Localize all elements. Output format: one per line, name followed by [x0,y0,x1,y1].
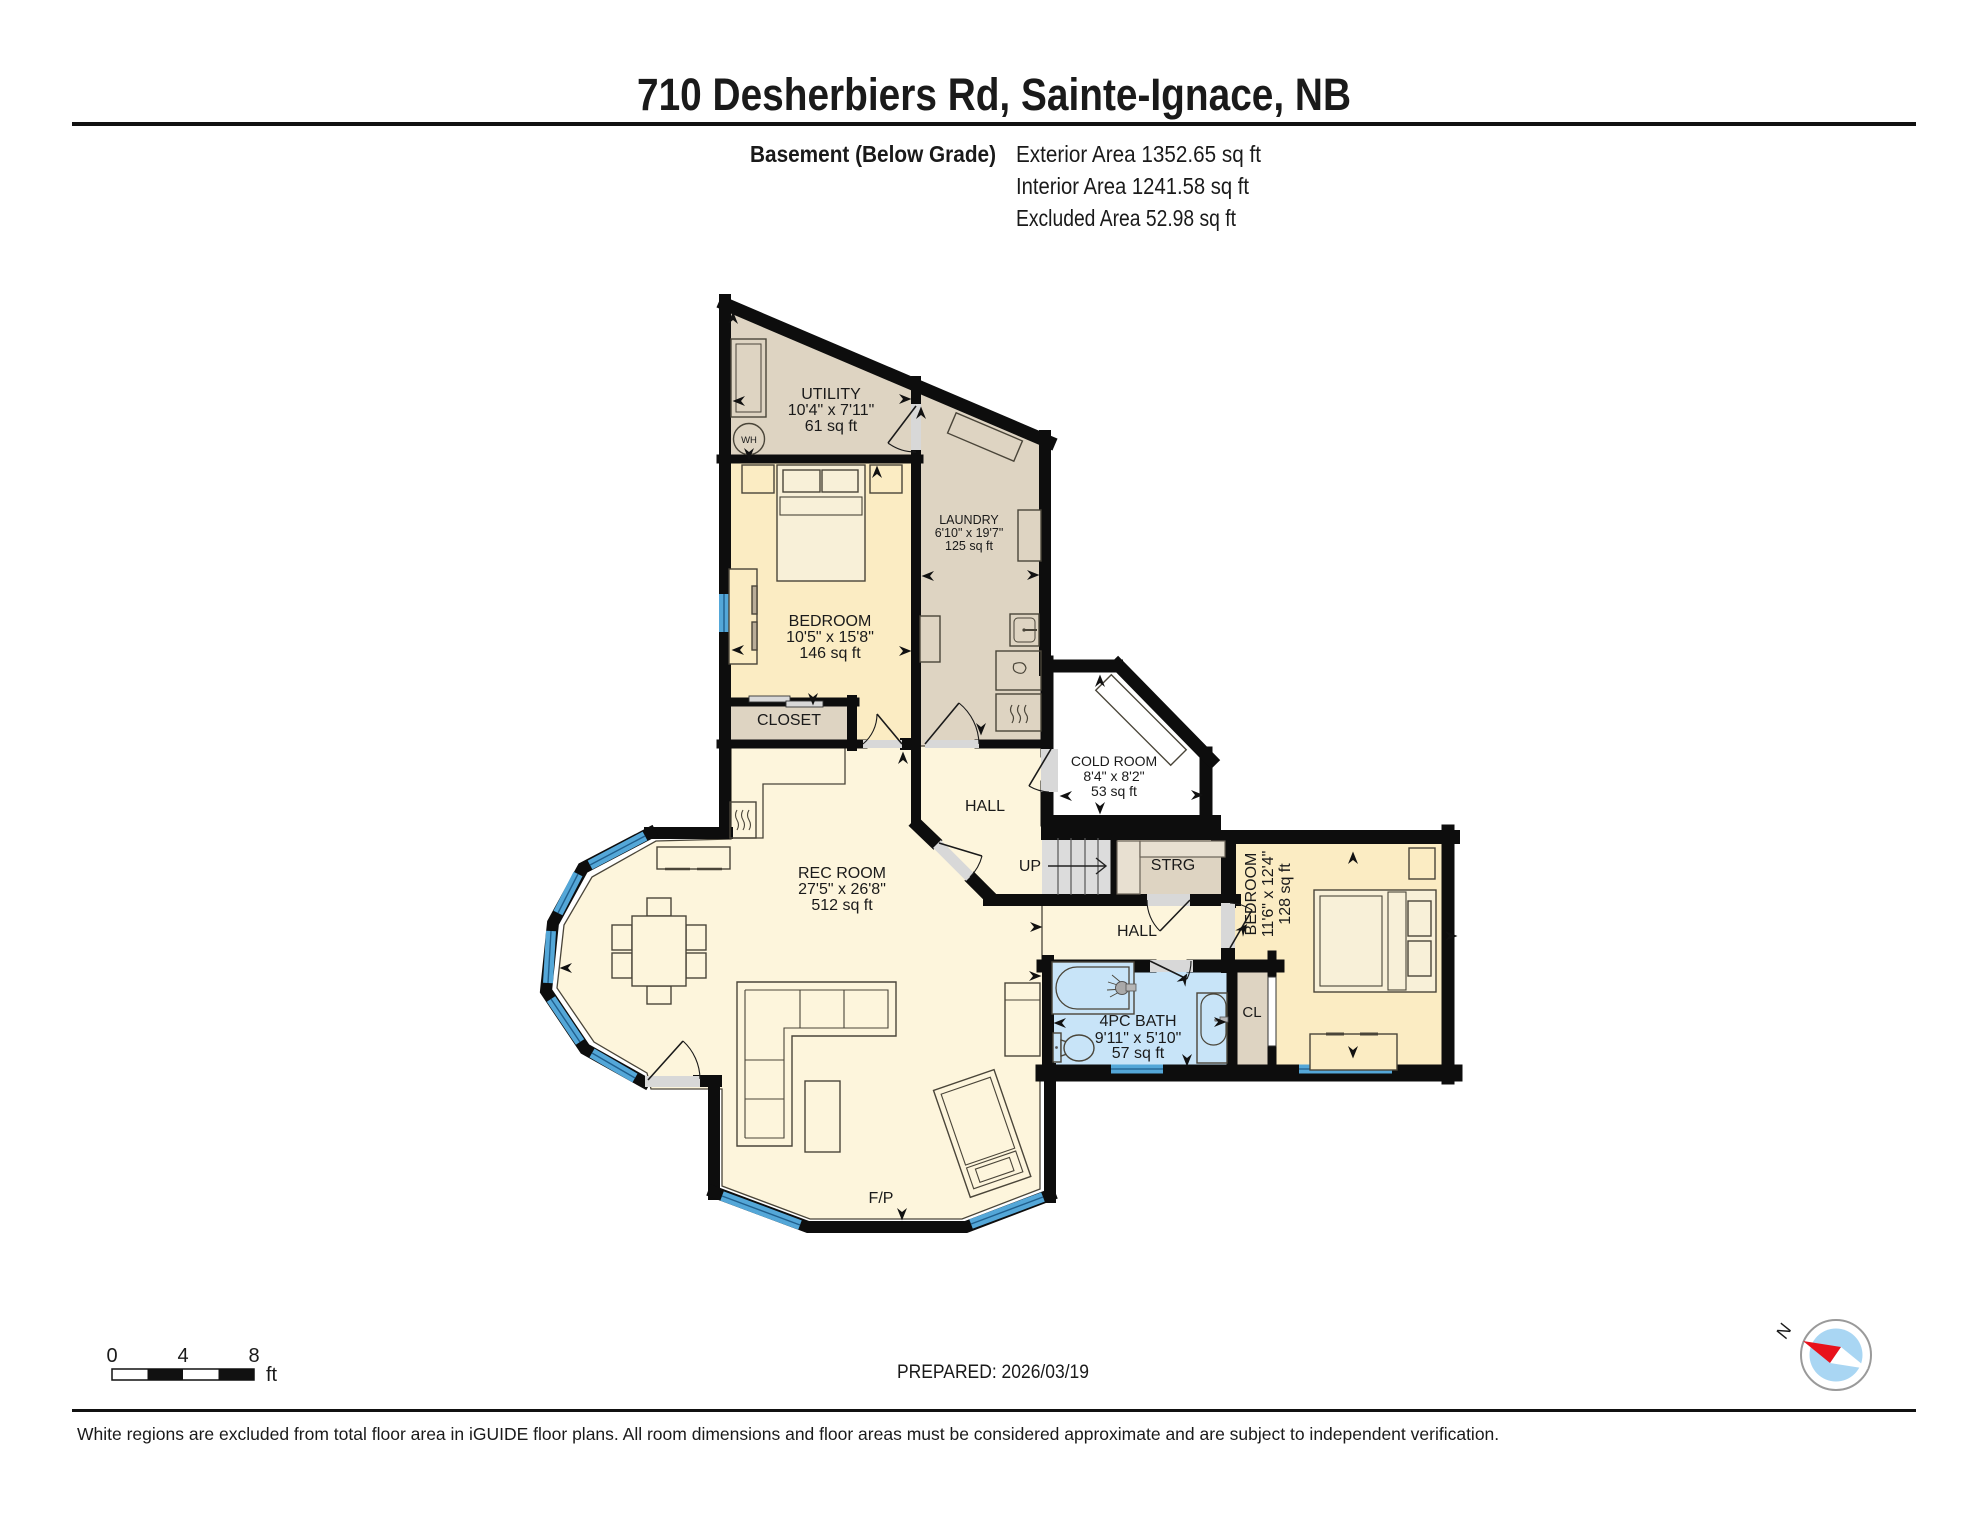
svg-text:57 sq ft: 57 sq ft [1112,1045,1165,1062]
svg-text:BEDROOM: BEDROOM [789,613,872,630]
svg-text:27'5" x 26'8": 27'5" x 26'8" [798,881,886,898]
svg-text:HALL: HALL [965,798,1005,815]
svg-text:CL: CL [1242,1004,1261,1021]
svg-text:0: 0 [106,1345,117,1367]
svg-text:125 sq ft: 125 sq ft [945,539,993,553]
svg-text:11'6" x 12'4": 11'6" x 12'4" [1260,851,1277,938]
svg-text:8'4" x 8'2": 8'4" x 8'2" [1083,768,1144,784]
svg-text:REC ROOM: REC ROOM [798,865,886,882]
svg-text:Basement (Below Grade): Basement (Below Grade) [750,141,996,167]
svg-text:4: 4 [177,1345,188,1367]
svg-text:4PC BATH: 4PC BATH [1099,1013,1176,1030]
svg-text:Exterior Area 1352.65 sq ft: Exterior Area 1352.65 sq ft [1016,141,1262,167]
svg-text:10'4" x 7'11": 10'4" x 7'11" [788,402,875,419]
svg-text:WH: WH [741,435,757,446]
svg-text:ft: ft [266,1364,278,1386]
svg-text:PREPARED: 2026/03/19: PREPARED: 2026/03/19 [897,1361,1089,1383]
svg-text:Interior Area 1241.58 sq ft: Interior Area 1241.58 sq ft [1016,173,1250,199]
svg-text:146 sq ft: 146 sq ft [799,645,861,662]
svg-text:UP: UP [1019,858,1041,875]
svg-text:512 sq ft: 512 sq ft [811,897,873,914]
svg-text:STRG: STRG [1151,857,1195,874]
svg-text:CLOSET: CLOSET [757,712,821,729]
svg-text:LAUNDRY: LAUNDRY [939,513,999,527]
svg-text:61 sq ft: 61 sq ft [805,418,858,435]
svg-text:F/P: F/P [869,1190,894,1207]
svg-text:BEDROOM: BEDROOM [1243,853,1260,936]
svg-text:10'5" x 15'8": 10'5" x 15'8" [786,629,874,646]
svg-text:HALL: HALL [1117,923,1157,940]
svg-text:COLD ROOM: COLD ROOM [1071,753,1157,769]
svg-text:White regions are excluded fro: White regions are excluded from total fl… [77,1424,1499,1444]
svg-text:710 Desherbiers Rd, Sainte-Ign: 710 Desherbiers Rd, Sainte-Ignace, NB [637,69,1351,120]
svg-text:Excluded Area 52.98 sq ft: Excluded Area 52.98 sq ft [1016,205,1237,231]
svg-text:53 sq ft: 53 sq ft [1091,783,1137,799]
svg-text:6'10" x 19'7": 6'10" x 19'7" [935,526,1004,540]
svg-text:8: 8 [248,1345,259,1367]
svg-text:128 sq ft: 128 sq ft [1277,863,1294,925]
svg-text:UTILITY: UTILITY [801,386,861,403]
